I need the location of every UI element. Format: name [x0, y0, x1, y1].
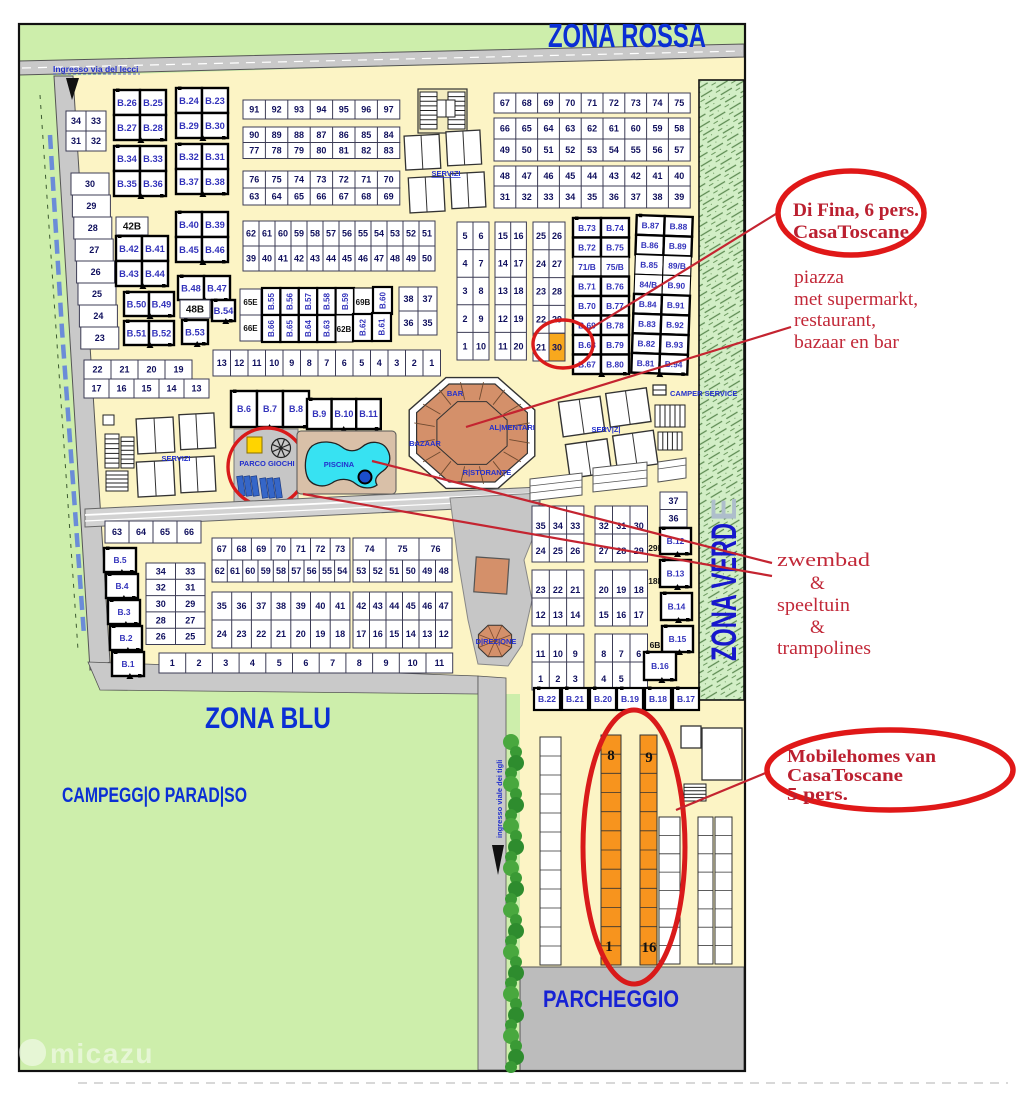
- svg-text:48: 48: [390, 254, 400, 264]
- svg-text:13: 13: [553, 610, 563, 620]
- svg-text:50: 50: [406, 566, 416, 576]
- svg-text:55: 55: [322, 566, 332, 576]
- svg-text:SERVIZI: SERVIZI: [161, 454, 190, 463]
- svg-text:20: 20: [599, 585, 609, 595]
- svg-text:47: 47: [374, 254, 384, 264]
- svg-text:24: 24: [536, 546, 546, 556]
- svg-text:69: 69: [384, 192, 394, 202]
- svg-text:66: 66: [316, 192, 326, 202]
- svg-text:51: 51: [543, 145, 553, 155]
- svg-text:B.60: B.60: [379, 292, 388, 309]
- svg-text:B.46: B.46: [205, 245, 225, 255]
- svg-text:18: 18: [634, 585, 644, 595]
- svg-text:41: 41: [652, 171, 662, 181]
- svg-text:3: 3: [394, 358, 399, 368]
- svg-text:ZONA ROSSA: ZONA ROSSA: [548, 17, 706, 54]
- svg-text:53: 53: [587, 145, 597, 155]
- svg-text:52: 52: [565, 145, 575, 155]
- svg-text:B.1: B.1: [121, 659, 134, 669]
- svg-text:83: 83: [384, 146, 394, 156]
- svg-text:B.21: B.21: [566, 694, 584, 704]
- svg-text:70: 70: [565, 98, 575, 108]
- svg-text:89: 89: [272, 130, 282, 140]
- svg-text:B.66: B.66: [267, 320, 276, 337]
- svg-text:B.26: B.26: [117, 98, 137, 108]
- svg-text:9: 9: [478, 314, 483, 324]
- svg-text:61: 61: [262, 229, 272, 239]
- svg-text:47: 47: [522, 171, 532, 181]
- svg-text:Mobilehomes van: Mobilehomes van: [787, 746, 936, 766]
- svg-text:60: 60: [631, 124, 641, 134]
- svg-text:57: 57: [326, 229, 336, 239]
- svg-text:B.3: B.3: [117, 607, 130, 617]
- svg-text:CAMPEGG|O PARAD|SO: CAMPEGG|O PARAD|SO: [62, 784, 247, 807]
- svg-text:B.11: B.11: [359, 409, 378, 419]
- svg-text:22: 22: [553, 585, 563, 595]
- svg-text:24: 24: [536, 259, 546, 269]
- svg-text:B.85: B.85: [640, 260, 658, 271]
- svg-text:80: 80: [316, 146, 326, 156]
- svg-text:B.93: B.93: [665, 339, 683, 350]
- svg-text:32: 32: [156, 583, 166, 593]
- svg-text:22: 22: [92, 365, 102, 375]
- svg-text:46: 46: [422, 601, 432, 611]
- svg-text:84: 84: [384, 130, 394, 140]
- svg-text:71/B: 71/B: [578, 262, 596, 272]
- svg-text:B.55: B.55: [267, 293, 276, 310]
- svg-text:36: 36: [668, 514, 678, 524]
- svg-text:30: 30: [156, 599, 166, 609]
- svg-text:96: 96: [361, 105, 371, 115]
- svg-text:4: 4: [377, 358, 382, 368]
- svg-text:27: 27: [552, 259, 562, 269]
- svg-text:B.88: B.88: [669, 221, 687, 232]
- svg-text:5 pers.: 5 pers.: [787, 784, 848, 804]
- svg-text:40: 40: [674, 171, 684, 181]
- svg-text:micazu: micazu: [50, 1038, 154, 1069]
- svg-text:91: 91: [249, 105, 259, 115]
- svg-text:B.31: B.31: [205, 152, 225, 162]
- svg-text:B.57: B.57: [304, 293, 313, 310]
- svg-text:B.80: B.80: [606, 359, 624, 369]
- svg-text:BAZAAR: BAZAAR: [409, 439, 441, 448]
- svg-text:ingresso viale dei tigli: ingresso viale dei tigli: [495, 760, 504, 838]
- svg-text:B.92: B.92: [666, 320, 684, 331]
- svg-text:33: 33: [91, 116, 101, 126]
- svg-text:44: 44: [326, 254, 336, 264]
- svg-text:B.50: B.50: [127, 299, 147, 309]
- svg-text:47: 47: [439, 601, 449, 611]
- svg-text:10: 10: [408, 658, 418, 668]
- svg-text:12: 12: [439, 629, 449, 639]
- svg-text:B.19: B.19: [621, 694, 639, 704]
- svg-text:35: 35: [217, 601, 227, 611]
- svg-text:48: 48: [500, 171, 510, 181]
- svg-text:43: 43: [373, 601, 383, 611]
- svg-text:50: 50: [522, 145, 532, 155]
- svg-text:B.38: B.38: [205, 177, 225, 187]
- svg-text:43: 43: [609, 171, 619, 181]
- svg-text:67: 67: [339, 192, 349, 202]
- svg-text:1: 1: [170, 658, 175, 668]
- svg-text:17: 17: [356, 629, 366, 639]
- svg-text:82: 82: [361, 146, 371, 156]
- svg-text:B.23: B.23: [205, 96, 225, 106]
- svg-text:14: 14: [406, 629, 416, 639]
- svg-text:58: 58: [310, 229, 320, 239]
- svg-text:B.37: B.37: [179, 177, 199, 187]
- svg-text:95: 95: [339, 105, 349, 115]
- svg-text:PISCINA: PISCINA: [324, 460, 355, 469]
- svg-text:11: 11: [252, 358, 262, 368]
- svg-text:38: 38: [403, 294, 413, 304]
- svg-text:speeltuin: speeltuin: [777, 595, 851, 616]
- svg-text:17: 17: [91, 384, 101, 394]
- svg-text:51: 51: [422, 229, 432, 239]
- svg-text:5: 5: [619, 674, 624, 684]
- svg-text:D|REZ|ONE: D|REZ|ONE: [476, 637, 517, 646]
- svg-text:BAR: BAR: [447, 389, 464, 398]
- svg-text:63: 63: [249, 192, 259, 202]
- svg-text:36: 36: [403, 318, 413, 328]
- svg-text:49: 49: [500, 145, 510, 155]
- svg-text:B.82: B.82: [637, 338, 655, 349]
- svg-text:16: 16: [513, 231, 523, 241]
- svg-text:B.5: B.5: [113, 555, 126, 565]
- svg-text:B.42: B.42: [119, 244, 139, 254]
- svg-text:ZONA BLU: ZONA BLU: [205, 702, 331, 735]
- svg-text:&: &: [810, 573, 825, 594]
- svg-text:25: 25: [553, 546, 563, 556]
- svg-text:3: 3: [223, 658, 228, 668]
- svg-text:36: 36: [236, 601, 246, 611]
- svg-text:19: 19: [315, 629, 325, 639]
- svg-text:51: 51: [389, 566, 399, 576]
- svg-text:40: 40: [262, 254, 272, 264]
- svg-text:59: 59: [294, 229, 304, 239]
- svg-text:44: 44: [587, 171, 597, 181]
- svg-text:1: 1: [429, 358, 434, 368]
- svg-text:25: 25: [536, 231, 546, 241]
- svg-text:10: 10: [269, 358, 279, 368]
- svg-text:63: 63: [112, 527, 122, 537]
- svg-text:97: 97: [384, 105, 394, 115]
- svg-text:16: 16: [616, 610, 626, 620]
- svg-text:42: 42: [631, 171, 641, 181]
- svg-text:B.58: B.58: [322, 293, 331, 310]
- svg-text:68: 68: [361, 192, 371, 202]
- svg-text:12: 12: [234, 358, 244, 368]
- svg-text:42: 42: [356, 601, 366, 611]
- svg-text:57: 57: [291, 566, 301, 576]
- svg-text:67: 67: [500, 98, 510, 108]
- svg-text:68: 68: [522, 98, 532, 108]
- svg-text:29: 29: [185, 599, 195, 609]
- svg-text:B.36: B.36: [143, 179, 163, 189]
- svg-text:53: 53: [390, 229, 400, 239]
- svg-text:B.71: B.71: [578, 281, 596, 291]
- svg-text:17: 17: [634, 610, 644, 620]
- svg-text:B.47: B.47: [207, 283, 227, 293]
- svg-text:15: 15: [389, 629, 399, 639]
- svg-text:7: 7: [324, 358, 329, 368]
- svg-text:93: 93: [294, 105, 304, 115]
- svg-text:76: 76: [430, 544, 440, 554]
- svg-text:B.29: B.29: [179, 121, 199, 131]
- svg-text:22: 22: [536, 315, 546, 325]
- svg-text:B.74: B.74: [606, 223, 624, 233]
- svg-text:B.35: B.35: [117, 179, 137, 189]
- svg-text:B.53: B.53: [185, 327, 205, 337]
- svg-text:79: 79: [294, 146, 304, 156]
- svg-text:58: 58: [276, 566, 286, 576]
- svg-text:2: 2: [462, 314, 467, 324]
- svg-text:4: 4: [250, 658, 255, 668]
- svg-text:69: 69: [256, 544, 266, 554]
- svg-text:40: 40: [315, 601, 325, 611]
- svg-text:36: 36: [609, 192, 619, 202]
- svg-text:74: 74: [652, 98, 662, 108]
- svg-text:B.61: B.61: [378, 318, 387, 335]
- svg-text:B.89: B.89: [669, 241, 687, 252]
- svg-text:37: 37: [668, 496, 678, 506]
- svg-text:E: E: [705, 498, 744, 521]
- svg-text:28: 28: [88, 223, 98, 233]
- svg-text:13: 13: [217, 358, 227, 368]
- svg-text:SERV|Z|: SERV|Z|: [591, 425, 620, 434]
- svg-text:31: 31: [500, 192, 510, 202]
- svg-text:62: 62: [587, 124, 597, 134]
- svg-text:30: 30: [85, 179, 95, 189]
- svg-text:ZONA VERD: ZONA VERD: [705, 523, 744, 661]
- svg-text:zwembad: zwembad: [777, 550, 871, 571]
- svg-text:75: 75: [397, 544, 407, 554]
- svg-text:B.4: B.4: [115, 581, 128, 591]
- svg-text:71: 71: [361, 175, 371, 185]
- svg-text:34: 34: [553, 521, 563, 531]
- svg-text:B.49: B.49: [152, 299, 172, 309]
- svg-text:20: 20: [513, 341, 523, 351]
- svg-text:37: 37: [422, 294, 432, 304]
- svg-text:33: 33: [543, 192, 553, 202]
- svg-text:45: 45: [406, 601, 416, 611]
- svg-text:25: 25: [185, 632, 195, 642]
- svg-text:B.8: B.8: [289, 404, 303, 414]
- svg-text:R|STORANTE: R|STORANTE: [463, 468, 512, 477]
- svg-text:14: 14: [166, 384, 176, 394]
- svg-text:85: 85: [361, 130, 371, 140]
- svg-text:76: 76: [249, 175, 259, 185]
- svg-text:24: 24: [93, 311, 103, 321]
- svg-text:B.18: B.18: [649, 694, 667, 704]
- svg-text:5: 5: [277, 658, 282, 668]
- svg-text:88: 88: [294, 130, 304, 140]
- svg-text:8: 8: [607, 748, 615, 764]
- svg-text:21: 21: [536, 342, 546, 352]
- svg-text:B.91: B.91: [667, 300, 685, 311]
- svg-text:PARCHEGGIO: PARCHEGGIO: [543, 986, 679, 1013]
- svg-text:30: 30: [552, 342, 562, 352]
- svg-text:21: 21: [570, 585, 580, 595]
- svg-text:37: 37: [256, 601, 266, 611]
- svg-text:45: 45: [342, 254, 352, 264]
- svg-text:44: 44: [389, 601, 399, 611]
- svg-text:9: 9: [645, 750, 653, 766]
- svg-text:28: 28: [156, 615, 166, 625]
- svg-text:Ingresso via del lecci: Ingresso via del lecci: [53, 64, 139, 74]
- svg-text:74: 74: [364, 544, 374, 554]
- svg-text:55: 55: [358, 229, 368, 239]
- svg-text:61: 61: [230, 566, 240, 576]
- svg-text:B.51: B.51: [127, 328, 147, 338]
- svg-text:94: 94: [316, 105, 326, 115]
- svg-text:75: 75: [674, 98, 684, 108]
- svg-text:73: 73: [316, 175, 326, 185]
- svg-text:11: 11: [498, 341, 508, 351]
- svg-text:B.9: B.9: [312, 409, 326, 419]
- svg-text:piazza: piazza: [794, 267, 845, 288]
- svg-text:B.73: B.73: [578, 223, 596, 233]
- svg-text:6: 6: [478, 231, 483, 241]
- svg-text:B.17: B.17: [677, 694, 695, 704]
- svg-text:39: 39: [246, 254, 256, 264]
- svg-text:64: 64: [272, 192, 282, 202]
- svg-text:B.32: B.32: [179, 152, 199, 162]
- svg-text:20: 20: [146, 365, 156, 375]
- svg-text:PARCO GIOCHI: PARCO GIOCHI: [239, 459, 294, 468]
- svg-text:B.70: B.70: [578, 301, 596, 311]
- svg-text:26: 26: [570, 546, 580, 556]
- svg-text:48B: 48B: [186, 305, 204, 316]
- svg-text:53: 53: [356, 566, 366, 576]
- svg-text:70: 70: [384, 175, 394, 185]
- svg-text:58: 58: [674, 124, 684, 134]
- svg-text:B.45: B.45: [179, 245, 199, 255]
- svg-text:2: 2: [196, 658, 201, 668]
- svg-text:22: 22: [256, 629, 266, 639]
- svg-text:45: 45: [565, 171, 575, 181]
- svg-text:9: 9: [573, 649, 578, 659]
- svg-text:65: 65: [160, 527, 170, 537]
- svg-text:14: 14: [498, 259, 508, 269]
- svg-text:72: 72: [315, 544, 325, 554]
- svg-text:24: 24: [217, 629, 227, 639]
- svg-text:B.43: B.43: [119, 269, 139, 279]
- svg-text:7: 7: [619, 649, 624, 659]
- svg-text:75/B: 75/B: [606, 262, 624, 272]
- svg-text:68: 68: [236, 544, 246, 554]
- svg-text:13: 13: [498, 286, 508, 296]
- svg-text:69B: 69B: [356, 298, 371, 307]
- svg-text:13: 13: [422, 629, 432, 639]
- svg-text:13: 13: [191, 384, 201, 394]
- svg-text:B.86: B.86: [641, 240, 659, 251]
- svg-text:2: 2: [412, 358, 417, 368]
- svg-text:6: 6: [342, 358, 347, 368]
- svg-text:1: 1: [462, 341, 467, 351]
- svg-text:64: 64: [543, 124, 553, 134]
- svg-text:65: 65: [522, 124, 532, 134]
- svg-text:SERVIZI: SERVIZI: [431, 169, 460, 178]
- svg-text:1: 1: [538, 674, 543, 684]
- svg-text:16: 16: [373, 629, 383, 639]
- svg-text:52: 52: [373, 566, 383, 576]
- svg-text:B.40: B.40: [179, 220, 199, 230]
- svg-text:34: 34: [156, 566, 166, 576]
- svg-text:17: 17: [513, 259, 523, 269]
- svg-text:4: 4: [601, 674, 606, 684]
- svg-text:34: 34: [71, 116, 81, 126]
- svg-text:92: 92: [272, 105, 282, 115]
- svg-text:B.72: B.72: [578, 242, 596, 252]
- svg-text:35: 35: [422, 318, 432, 328]
- svg-text:B.20: B.20: [594, 694, 612, 704]
- svg-text:73: 73: [335, 544, 345, 554]
- svg-text:54: 54: [337, 566, 347, 576]
- svg-text:B.27: B.27: [117, 123, 137, 133]
- svg-text:18: 18: [335, 629, 345, 639]
- svg-text:3: 3: [573, 674, 578, 684]
- svg-text:25: 25: [92, 289, 102, 299]
- svg-text:67: 67: [217, 544, 227, 554]
- svg-text:B.30: B.30: [205, 121, 225, 131]
- svg-text:16: 16: [642, 940, 658, 956]
- svg-text:31: 31: [185, 583, 195, 593]
- svg-text:72: 72: [339, 175, 349, 185]
- svg-text:met supermarkt,: met supermarkt,: [794, 289, 918, 310]
- svg-text:71: 71: [296, 544, 306, 554]
- svg-text:15: 15: [498, 231, 508, 241]
- svg-text:23: 23: [536, 287, 546, 297]
- svg-text:26: 26: [91, 267, 101, 277]
- svg-text:2: 2: [555, 674, 560, 684]
- svg-text:42: 42: [294, 254, 304, 264]
- svg-text:B.10: B.10: [334, 409, 353, 419]
- svg-text:CasaToscane: CasaToscane: [787, 765, 903, 785]
- svg-text:15: 15: [599, 610, 609, 620]
- svg-text:B.75: B.75: [606, 242, 624, 252]
- svg-text:bazaar en bar: bazaar en bar: [794, 332, 900, 353]
- svg-text:77: 77: [249, 146, 259, 156]
- svg-text:B.34: B.34: [117, 154, 137, 164]
- svg-text:8: 8: [478, 286, 483, 296]
- svg-text:20: 20: [296, 629, 306, 639]
- svg-text:10: 10: [553, 649, 563, 659]
- svg-text:32: 32: [91, 136, 101, 146]
- svg-text:37: 37: [631, 192, 641, 202]
- svg-text:B.28: B.28: [143, 123, 163, 133]
- svg-text:B.13: B.13: [667, 569, 685, 579]
- svg-text:B.78: B.78: [606, 320, 624, 330]
- svg-text:73: 73: [631, 98, 641, 108]
- svg-text:56: 56: [652, 145, 662, 155]
- svg-text:16: 16: [116, 384, 126, 394]
- svg-text:41: 41: [335, 601, 345, 611]
- svg-text:61: 61: [609, 124, 619, 134]
- svg-text:10: 10: [476, 341, 486, 351]
- svg-text:29: 29: [86, 201, 96, 211]
- svg-text:12: 12: [536, 610, 546, 620]
- svg-text:B.76: B.76: [606, 281, 624, 291]
- svg-text:B.90: B.90: [667, 280, 685, 291]
- svg-text:63: 63: [565, 124, 575, 134]
- svg-text:9: 9: [289, 358, 294, 368]
- svg-text:CAMPER SERVICE: CAMPER SERVICE: [670, 389, 737, 398]
- svg-text:49: 49: [406, 254, 416, 264]
- svg-text:7: 7: [330, 658, 335, 668]
- svg-text:81: 81: [339, 146, 349, 156]
- svg-text:CasaToscane: CasaToscane: [793, 222, 909, 243]
